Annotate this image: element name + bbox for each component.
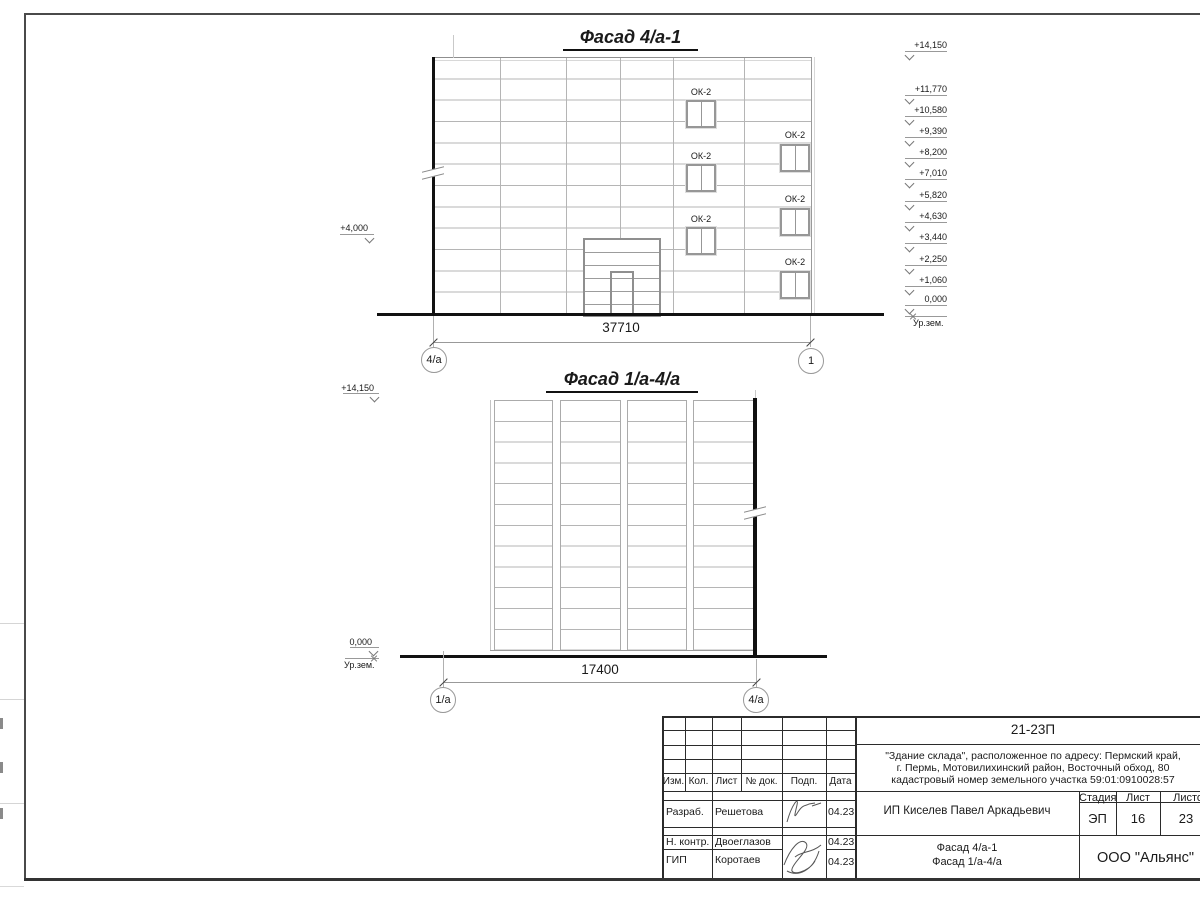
elevation-mark-icon (905, 222, 915, 232)
window-ok2 (780, 144, 810, 172)
elevation-label: +9,390 (903, 126, 947, 136)
sheets-value: 23 (1160, 811, 1200, 826)
elevation-mark-icon (905, 116, 915, 126)
elevation-label: 0,000 (334, 637, 372, 647)
titleblock-line (662, 745, 855, 746)
doc-title-line1: Фасад 4/а-1 (855, 842, 1079, 854)
elevation-label: +1,060 (903, 275, 947, 285)
titleblock-line (712, 716, 713, 878)
ground-line-top (377, 313, 884, 316)
titleblock-line (826, 849, 855, 850)
titleblock-line (662, 800, 855, 801)
window-tag: ОК-2 (778, 257, 812, 267)
window-mullion (701, 229, 702, 253)
elevation-label: +4,000 (330, 223, 368, 233)
project-address-line3: кадастровый номер земельного участка 59:… (855, 774, 1200, 786)
margin-text-fragment (0, 718, 3, 729)
doc-title-line2: Фасад 1/а-4/а (855, 856, 1079, 868)
window-mullion (795, 210, 796, 234)
facade-bay (627, 400, 687, 651)
facade-right-inner-line (814, 57, 815, 313)
man-door (610, 271, 634, 316)
axis-bubble: 4/а (743, 687, 769, 713)
elevation-label: +8,200 (903, 147, 947, 157)
margin-divider (0, 699, 24, 700)
company-name: ООО "Альянс" (1079, 850, 1200, 866)
window-tag: ОК-2 (684, 87, 718, 97)
client-name: ИП Киселев Павел Аркадьевич (855, 805, 1079, 817)
window-mullion (795, 273, 796, 297)
stage-header: Стадия (1079, 792, 1116, 804)
role-label: Н. контр. (666, 836, 709, 848)
titleblock-line (662, 773, 855, 774)
window-tag: ОК-2 (684, 214, 718, 224)
titleblock-line (826, 716, 827, 878)
signer-name: Двоеглазов (715, 836, 771, 848)
window-ok2 (686, 227, 716, 255)
dimension-line (433, 342, 810, 343)
sign-date: 04.23 (828, 836, 854, 848)
facade-left-line (490, 400, 491, 650)
window-ok2 (686, 164, 716, 192)
dimension-value: 37710 (591, 320, 651, 335)
elevation-mark-icon (905, 201, 915, 211)
elevation-label: +4,630 (903, 211, 947, 221)
elevation-mark-icon (905, 265, 915, 275)
signer-name: Решетова (715, 806, 763, 818)
window-tag: ОК-2 (778, 194, 812, 204)
elevation-label: +11,770 (903, 84, 947, 94)
col-header-podp: Подп. (782, 776, 826, 787)
panel-joint (500, 58, 501, 313)
window-mullion (701, 166, 702, 190)
project-address-line1: "Здание склада", расположенное по адресу… (855, 750, 1200, 762)
sheets-header: Листов (1160, 792, 1200, 804)
titleblock-line (662, 716, 664, 878)
stage-value: ЭП (1079, 811, 1116, 826)
parapet-inner-line (433, 60, 811, 61)
sign-date: 04.23 (828, 806, 854, 818)
bottom-facade-title: Фасад 1/а-4/а (546, 369, 698, 393)
facade-edge-line (753, 398, 757, 656)
titleblock-line (662, 716, 1200, 718)
margin-text-fragment (0, 762, 3, 773)
elevation-label: +14,150 (903, 40, 947, 50)
window-ok2 (780, 271, 810, 299)
panel-joint (566, 58, 567, 313)
elevation-label: +2,250 (903, 254, 947, 264)
titleblock-line (662, 827, 855, 828)
elevation-label: +7,010 (903, 168, 947, 178)
margin-divider (0, 803, 24, 804)
elevation-label: +5,820 (903, 190, 947, 200)
elevation-mark-icon (905, 95, 915, 105)
sign-date: 04.23 (828, 856, 854, 868)
signer-name: Коротаев (715, 854, 760, 866)
facade-bay (494, 400, 553, 651)
axis-bubble: 1 (798, 348, 824, 374)
facade-bay (693, 400, 754, 651)
elevation-mark-icon (365, 234, 375, 244)
ground-level-label: Ур.зем. (913, 318, 944, 328)
elevation-label: +14,150 (336, 383, 374, 393)
col-header-izm: Изм. (662, 776, 685, 787)
panel-joint (620, 58, 621, 239)
dimension-line (443, 682, 756, 683)
window-ok2 (686, 100, 716, 128)
margin-divider (0, 886, 24, 887)
leader-line (453, 35, 454, 58)
window-tag: ОК-2 (684, 151, 718, 161)
axis-bubble: 4/а (421, 347, 447, 373)
axis-line (755, 390, 756, 398)
elevation-label: +3,440 (903, 232, 947, 242)
elevation-mark-icon (905, 51, 915, 61)
window-mullion (701, 102, 702, 126)
ground-line-bottom (400, 655, 827, 658)
role-label: Разраб. (666, 806, 704, 818)
signature (780, 833, 826, 877)
panel-joint (673, 58, 674, 313)
elevation-mark-icon (370, 393, 380, 403)
margin-divider (0, 623, 24, 624)
axis-bubble: 1/а (430, 687, 456, 713)
window-ok2 (780, 208, 810, 236)
col-header-list: Лист (712, 776, 741, 787)
frame-bottom-border (24, 878, 1200, 881)
signature (784, 794, 824, 828)
titleblock-line (662, 849, 782, 850)
role-label: ГИП (666, 854, 687, 866)
panel-joint (744, 58, 745, 313)
col-header-kol: Кол. (685, 776, 712, 787)
elevation-label: +10,580 (903, 105, 947, 115)
dimension-value: 17400 (570, 662, 630, 677)
drawing-sheet: Фасад 4/а-1 ОК-2 ОК-2 ОК-2 ОК-2 ОК-2 ОК-… (0, 0, 1200, 900)
titleblock-line (662, 730, 855, 731)
elevation-label: 0,000 (903, 294, 947, 304)
frame-left-border (24, 13, 26, 880)
extension-line (756, 659, 757, 688)
elevation-mark-icon (905, 158, 915, 168)
sheet-header: Лист (1116, 792, 1160, 804)
sheet-value: 16 (1116, 811, 1160, 826)
facade-bay (560, 400, 621, 651)
frame-top-border (24, 13, 1200, 15)
ground-level-label: Ур.зем. (344, 660, 375, 670)
col-header-data: Дата (826, 776, 855, 787)
elevation-mark-icon (905, 137, 915, 147)
facade-edge-line (432, 57, 435, 313)
elevation-mark-icon (905, 243, 915, 253)
base-line (490, 650, 755, 651)
titleblock-line (855, 744, 1200, 745)
project-code: 21-23П (855, 722, 1200, 737)
margin-text-fragment (0, 808, 3, 819)
project-address-line2: г. Пермь, Мотовилихинский район, Восточн… (855, 762, 1200, 774)
window-tag: ОК-2 (778, 130, 812, 140)
titleblock-line (662, 759, 855, 760)
col-header-ndok: № док. (741, 776, 782, 787)
window-mullion (795, 146, 796, 170)
top-facade-title: Фасад 4/а-1 (563, 27, 698, 51)
elevation-mark-icon (905, 179, 915, 189)
